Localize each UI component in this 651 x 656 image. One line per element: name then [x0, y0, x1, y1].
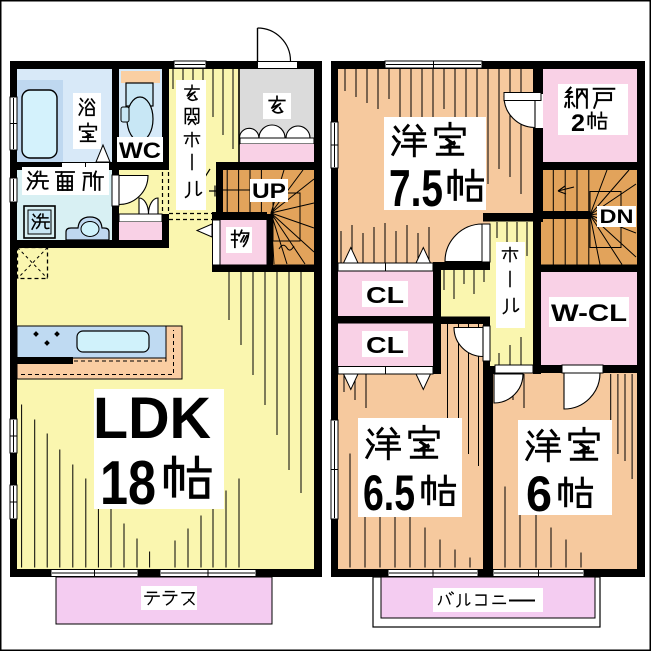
svg-text:DN: DN — [600, 207, 634, 228]
svg-text:WC: WC — [119, 138, 161, 163]
svg-text:2: 2 — [571, 110, 585, 137]
svg-text:CL: CL — [366, 282, 404, 308]
svg-text:LDK: LDK — [93, 386, 211, 451]
svg-text:W-CL: W-CL — [551, 300, 627, 327]
svg-text:7.5: 7.5 — [389, 160, 443, 218]
svg-text:UP: UP — [252, 180, 286, 203]
svg-text:6.5: 6.5 — [363, 465, 415, 521]
svg-text:18: 18 — [100, 449, 156, 518]
svg-text:CL: CL — [366, 332, 404, 358]
svg-text:6: 6 — [526, 466, 552, 522]
